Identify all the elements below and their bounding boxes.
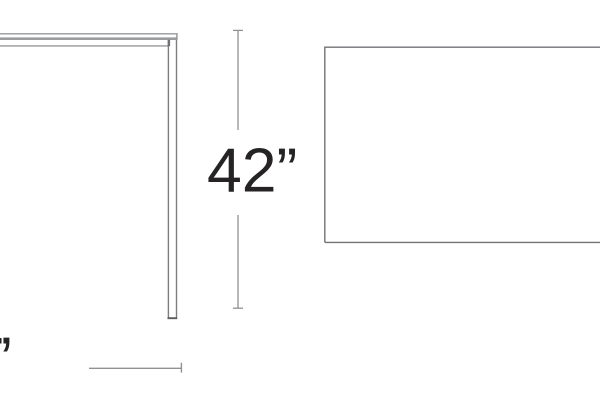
svg-text:42”: 42” (207, 136, 297, 206)
svg-text:”: ” (0, 325, 12, 395)
